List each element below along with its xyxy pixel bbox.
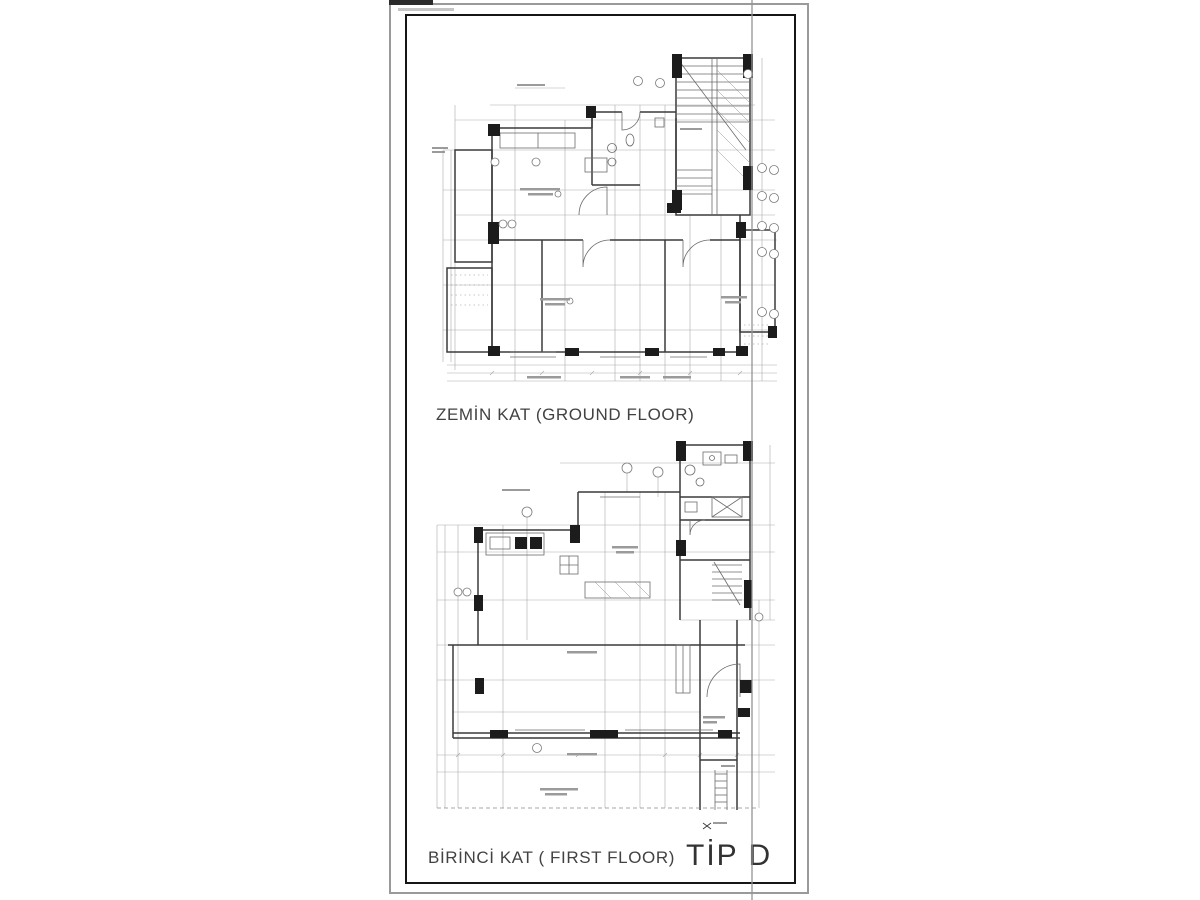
type-label: TİP D bbox=[686, 839, 772, 873]
drawing-sheet: ZEMİN KAT (GROUND FLOOR) BİRİNCİ KAT ( F… bbox=[0, 0, 1200, 900]
scan-artifact-top bbox=[389, 0, 433, 5]
first-floor-plan-drawing bbox=[425, 440, 795, 840]
ground-floor-plan-drawing bbox=[425, 40, 795, 400]
scan-artifact-header bbox=[398, 8, 454, 11]
first-floor-caption: BİRİNCİ KAT ( FIRST FLOOR) bbox=[428, 848, 675, 868]
ground-floor-caption: ZEMİN KAT (GROUND FLOOR) bbox=[436, 405, 694, 425]
scan-fold-line bbox=[751, 0, 753, 900]
